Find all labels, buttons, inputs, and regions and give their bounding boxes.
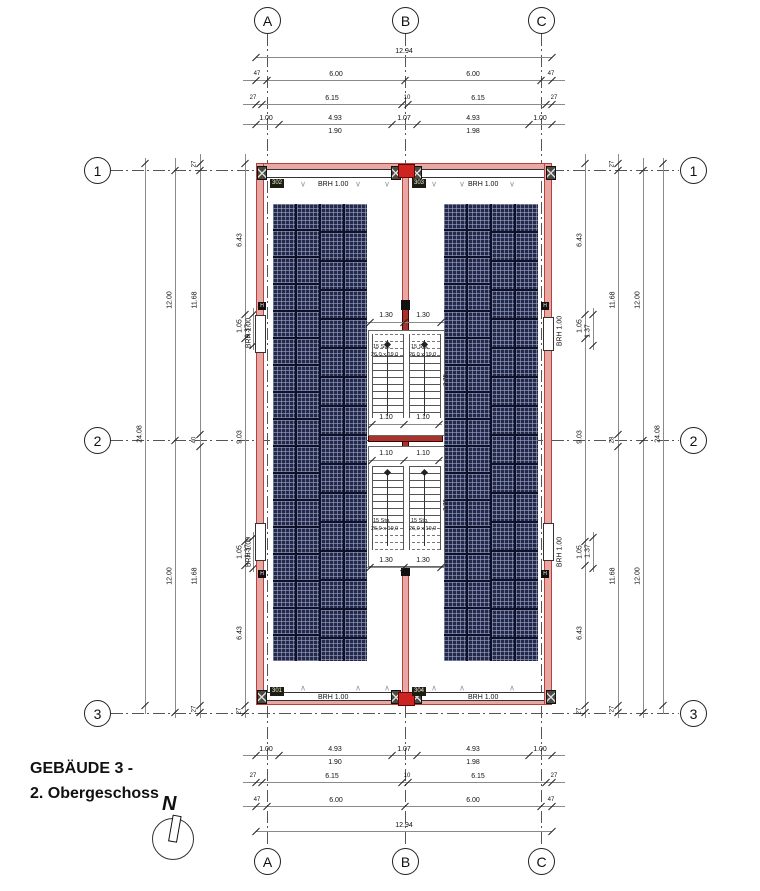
- room-tag: 301: [270, 687, 284, 696]
- stair-walk-line: [387, 340, 388, 416]
- solar-module: [444, 231, 466, 256]
- dim-line: [367, 322, 444, 323]
- window-opening-mark: ∨: [384, 180, 390, 189]
- dim-label: 4.93: [328, 115, 342, 122]
- dim-label: 6.43: [237, 233, 244, 247]
- dim-line: [243, 124, 565, 125]
- dim-label: 10: [404, 773, 411, 780]
- dim-label: 1.05: [577, 545, 584, 559]
- dim-label: 1.30: [379, 312, 393, 319]
- solar-module: [444, 393, 466, 418]
- dim-label: 27: [192, 161, 199, 168]
- solar-module: [516, 291, 538, 318]
- dim-label: 6.00: [329, 71, 343, 78]
- dim-line: [256, 831, 552, 832]
- solar-module: [297, 339, 319, 364]
- brh-label: BRH 1.00: [468, 181, 498, 188]
- solar-module: [297, 420, 319, 445]
- solar-module: [321, 262, 343, 289]
- solar-module: [444, 420, 466, 445]
- solar-module: [273, 474, 295, 499]
- solar-module: [345, 291, 367, 318]
- solar-module: [321, 320, 343, 347]
- shaft-block: [398, 164, 415, 178]
- dim-label: 27: [250, 95, 257, 102]
- dim-label: 9.03: [237, 430, 244, 444]
- solar-array: [444, 204, 538, 661]
- dim-label: 12.00: [167, 567, 174, 585]
- dim-label: 6.43: [237, 626, 244, 640]
- axis-circle-B: B: [392, 7, 419, 34]
- dim-sublabel: 1.98: [466, 759, 480, 766]
- dim-label: 1.30: [416, 557, 430, 564]
- solar-module: [444, 474, 466, 499]
- side-window: [543, 317, 554, 351]
- dim-label: 47: [254, 71, 261, 78]
- dim-label: 4.93: [466, 746, 480, 753]
- solar-module: [468, 420, 490, 445]
- hydrant-marker: H: [258, 570, 266, 578]
- window-opening-mark: ∨: [459, 180, 465, 189]
- solar-module: [273, 366, 295, 391]
- window-opening-mark: ∨: [431, 180, 437, 189]
- hydrant-marker: H: [258, 302, 266, 310]
- dim-label: 9.03: [577, 430, 584, 444]
- brh-label: BRH 1.00: [468, 694, 498, 701]
- dim-label: 28: [610, 437, 617, 444]
- solar-module: [273, 231, 295, 256]
- solar-module: [273, 339, 295, 364]
- solar-module: [297, 393, 319, 418]
- column-box: [546, 690, 556, 704]
- solar-module: [273, 312, 295, 337]
- solar-module: [516, 378, 538, 405]
- solar-module: [516, 523, 538, 550]
- column-box: [257, 166, 267, 180]
- solar-module: [297, 609, 319, 634]
- solar-module: [297, 447, 319, 472]
- solar-module: [345, 523, 367, 550]
- solar-module: [321, 349, 343, 376]
- solar-module: [516, 465, 538, 492]
- solar-module: [273, 420, 295, 445]
- solar-module: [492, 610, 514, 637]
- dim-label: 1.10: [416, 414, 430, 421]
- dim-sublabel: 1.90: [328, 128, 342, 135]
- solar-module: [345, 552, 367, 579]
- dim-label: 47: [548, 71, 555, 78]
- solar-module: [492, 291, 514, 318]
- dim-label: 11.68: [192, 568, 199, 585]
- solar-module: [297, 555, 319, 580]
- solar-module: [492, 465, 514, 492]
- solar-module: [468, 231, 490, 256]
- dim-label: 1.00: [259, 115, 273, 122]
- dim-label: 1.30: [416, 312, 430, 319]
- solar-module: [345, 436, 367, 463]
- dim-label: 27: [577, 708, 584, 715]
- window-opening-mark: ∧: [300, 684, 306, 693]
- solar-module: [273, 393, 295, 418]
- solar-module: [321, 204, 343, 231]
- wall: [256, 163, 264, 705]
- dim-line: [369, 424, 442, 425]
- axis-circle-C: C: [528, 848, 555, 875]
- side-window: [255, 315, 266, 353]
- axis-circle-1: 1: [84, 157, 111, 184]
- column-box: [257, 690, 267, 704]
- solar-module: [297, 312, 319, 337]
- solar-module: [468, 609, 490, 634]
- axis-circle-B: B: [392, 848, 419, 875]
- solar-module: [492, 378, 514, 405]
- dim-label: 6.00: [329, 797, 343, 804]
- dim-label: 27: [610, 161, 617, 168]
- dim-label: 6.15: [471, 773, 485, 780]
- solar-module: [444, 204, 466, 229]
- solar-module: [273, 555, 295, 580]
- solar-module: [444, 312, 466, 337]
- dim-label: 1.10: [379, 414, 393, 421]
- axis-circle-C: C: [528, 7, 555, 34]
- solar-module: [297, 636, 319, 661]
- solar-module: [297, 366, 319, 391]
- dim-label: 4.93: [466, 115, 480, 122]
- dim-label: 6.15: [471, 95, 485, 102]
- stair-treads: [373, 356, 403, 418]
- solar-module: [297, 204, 319, 229]
- solar-module: [321, 523, 343, 550]
- solar-module: [273, 447, 295, 472]
- stair-walk-line: [387, 470, 388, 546]
- dim-label: 24.08: [137, 425, 144, 443]
- dim-label: 1.05: [577, 319, 584, 333]
- dim-label: 6.43: [577, 233, 584, 247]
- solar-module: [345, 204, 367, 231]
- axis-circle-3: 3: [680, 700, 707, 727]
- solar-module: [492, 639, 514, 661]
- axis-circle-3: 3: [84, 700, 111, 727]
- solar-module: [516, 204, 538, 231]
- dim-label: 11.68: [610, 568, 617, 585]
- solar-module: [321, 552, 343, 579]
- window-opening-mark: ∨: [509, 180, 515, 189]
- solar-module: [273, 528, 295, 553]
- hydrant-marker: H: [541, 570, 549, 578]
- dim-line: [618, 154, 619, 718]
- dim-label: 1.00: [533, 746, 547, 753]
- solar-module: [468, 285, 490, 310]
- stair-text: 26,0 x 19,0: [409, 352, 436, 358]
- window-opening-mark: ∧: [431, 684, 437, 693]
- dim-label: 10: [404, 95, 411, 102]
- dim-label: 11.68: [192, 292, 199, 309]
- dim-label: 1.10: [416, 450, 430, 457]
- dim-line: [243, 755, 565, 756]
- dim-label: 12.00: [635, 567, 642, 585]
- solar-module: [468, 339, 490, 364]
- floor-plan-canvas: GEBÄUDE 3 - 2. Obergeschoss N 12.94476.0…: [0, 0, 760, 891]
- solar-module: [297, 231, 319, 256]
- dim-line: [145, 158, 146, 714]
- brh-label: BRH 1.00: [318, 694, 348, 701]
- solar-module: [444, 447, 466, 472]
- dim-sublabel: 1.98: [466, 128, 480, 135]
- drawing-title-line2: 2. Obergeschoss: [30, 785, 159, 803]
- brh-label: BRH 1.00: [557, 316, 564, 346]
- dim-label: 27: [192, 706, 199, 713]
- hydrant-marker: H: [541, 302, 549, 310]
- solar-array: [273, 204, 367, 661]
- solar-module: [273, 582, 295, 607]
- dim-label: 4.93: [328, 746, 342, 753]
- solar-module: [444, 285, 466, 310]
- solar-module: [468, 312, 490, 337]
- solar-module: [516, 581, 538, 608]
- dim-line: [256, 57, 552, 58]
- stair-walk-line: [424, 470, 425, 546]
- solar-module: [297, 258, 319, 283]
- solar-module: [516, 407, 538, 434]
- axis-circle-1: 1: [680, 157, 707, 184]
- brh-label: BRH 1.00: [246, 537, 253, 567]
- dim-label: 6.15: [325, 95, 339, 102]
- dim-sublabel: 1.90: [328, 759, 342, 766]
- dim-label: 1.00: [259, 746, 273, 753]
- solar-module: [345, 378, 367, 405]
- solar-module: [345, 610, 367, 637]
- solar-module: [492, 233, 514, 260]
- dim-label: 27: [610, 706, 617, 713]
- solar-module: [444, 528, 466, 553]
- stair-text: 26,0 x 19,0: [371, 352, 398, 358]
- solar-module: [321, 581, 343, 608]
- solar-module: [345, 407, 367, 434]
- solar-module: [345, 349, 367, 376]
- north-label: N: [162, 793, 176, 816]
- solar-module: [468, 555, 490, 580]
- side-window: [543, 523, 554, 561]
- solar-module: [492, 494, 514, 521]
- dim-label: 27: [551, 95, 558, 102]
- solar-module: [345, 233, 367, 260]
- dim-label: 6.15: [325, 773, 339, 780]
- dim-line: [585, 154, 586, 718]
- solar-module: [297, 285, 319, 310]
- dim-label: 12.00: [635, 291, 642, 309]
- dim-label: 12.00: [167, 291, 174, 309]
- dim-label: 1.37: [585, 544, 592, 558]
- solar-module: [345, 639, 367, 661]
- dim-label: 1.37: [585, 324, 592, 338]
- side-window: [255, 523, 266, 561]
- stair-text: 15 Stg.: [411, 518, 428, 524]
- solar-module: [345, 494, 367, 521]
- wall: [544, 163, 552, 705]
- solar-module: [444, 582, 466, 607]
- solar-module: [516, 262, 538, 289]
- room-tag: 303: [412, 179, 426, 188]
- stair-text: 26,0 x 19,0: [371, 526, 398, 532]
- window-opening-mark: ∧: [459, 684, 465, 693]
- solar-module: [492, 552, 514, 579]
- window-opening-mark: ∧: [355, 684, 361, 693]
- dim-line: [663, 158, 664, 714]
- dim-label: 1.00: [533, 115, 547, 122]
- solar-module: [321, 436, 343, 463]
- solar-module: [321, 639, 343, 661]
- dim-label: 1.30: [379, 557, 393, 564]
- solar-module: [321, 494, 343, 521]
- dim-label: 27: [250, 773, 257, 780]
- solar-module: [492, 581, 514, 608]
- dim-label: 47: [548, 797, 555, 804]
- dim-label: 6.00: [466, 71, 480, 78]
- solar-module: [492, 262, 514, 289]
- solar-module: [468, 474, 490, 499]
- drawing-title-line1: GEBÄUDE 3 -: [30, 760, 133, 778]
- stair-treads: [410, 356, 440, 418]
- stair-flight: [409, 466, 441, 550]
- stair-walk-line: [424, 340, 425, 416]
- solar-module: [321, 233, 343, 260]
- solar-module: [273, 636, 295, 661]
- solar-module: [273, 285, 295, 310]
- window-band: [416, 169, 544, 178]
- dim-line: [245, 154, 246, 718]
- brh-label: BRH 1.00: [246, 318, 253, 348]
- solar-module: [492, 320, 514, 347]
- solar-module: [468, 447, 490, 472]
- solar-module: [273, 204, 295, 229]
- dim-label: 12.94: [395, 822, 413, 829]
- solar-module: [516, 552, 538, 579]
- core-block: [401, 300, 410, 310]
- solar-module: [468, 258, 490, 283]
- stair-text: 26,0 x 19,0: [409, 526, 436, 532]
- solar-module: [321, 610, 343, 637]
- solar-module: [273, 501, 295, 526]
- solar-module: [516, 436, 538, 463]
- solar-module: [468, 204, 490, 229]
- dim-label: 24.08: [655, 425, 662, 443]
- dim-label: 27: [551, 773, 558, 780]
- solar-module: [468, 366, 490, 391]
- brh-label: BRH 1.00: [318, 181, 348, 188]
- solar-module: [444, 339, 466, 364]
- dim-line: [369, 460, 442, 461]
- axis-circle-A: A: [254, 7, 281, 34]
- solar-module: [273, 609, 295, 634]
- window-opening-mark: ∧: [384, 684, 390, 693]
- window-opening-mark: ∨: [355, 180, 361, 189]
- dim-label: 1.05: [237, 545, 244, 559]
- solar-module: [492, 349, 514, 376]
- solar-module: [516, 320, 538, 347]
- window-opening-mark: ∨: [300, 180, 306, 189]
- solar-module: [273, 258, 295, 283]
- solar-module: [468, 528, 490, 553]
- dim-label: 1.07: [397, 115, 411, 122]
- dim-line: [367, 567, 444, 568]
- solar-module: [444, 636, 466, 661]
- dim-line: [243, 782, 565, 783]
- solar-module: [297, 528, 319, 553]
- solar-module: [321, 407, 343, 434]
- dim-label: 47: [254, 797, 261, 804]
- dim-line: [243, 104, 565, 105]
- solar-module: [516, 349, 538, 376]
- dim-label: 1.07: [397, 746, 411, 753]
- axis-circle-A: A: [254, 848, 281, 875]
- solar-module: [468, 393, 490, 418]
- solar-module: [345, 465, 367, 492]
- solar-module: [444, 258, 466, 283]
- solar-module: [468, 636, 490, 661]
- dim-line: [200, 154, 201, 718]
- axis-circle-2: 2: [84, 427, 111, 454]
- room-tag: 302: [270, 179, 284, 188]
- solar-module: [297, 501, 319, 526]
- solar-module: [444, 555, 466, 580]
- solar-module: [444, 609, 466, 634]
- solar-module: [321, 465, 343, 492]
- solar-module: [516, 610, 538, 637]
- solar-module: [492, 523, 514, 550]
- window-opening-mark: ∧: [509, 684, 515, 693]
- solar-module: [321, 291, 343, 318]
- window-band: [264, 169, 392, 178]
- brh-label: BRH 1.00: [557, 537, 564, 567]
- solar-module: [492, 436, 514, 463]
- solar-module: [297, 582, 319, 607]
- solar-module: [345, 320, 367, 347]
- dim-label: 2.75: [444, 374, 451, 386]
- stair-flight: [372, 466, 404, 550]
- solar-module: [297, 474, 319, 499]
- dim-label: 12.94: [395, 48, 413, 55]
- dim-label: 6.43: [577, 626, 584, 640]
- axis-circle-2: 2: [680, 427, 707, 454]
- dim-label: 11.68: [610, 292, 617, 309]
- solar-module: [345, 581, 367, 608]
- dim-label: 6.00: [466, 797, 480, 804]
- solar-module: [468, 501, 490, 526]
- solar-module: [516, 233, 538, 260]
- dim-label: 27: [237, 708, 244, 715]
- room-tag: 304: [412, 687, 426, 696]
- dim-label: 1.10: [379, 450, 393, 457]
- solar-module: [516, 494, 538, 521]
- solar-module: [492, 204, 514, 231]
- dim-label: 1.05: [237, 319, 244, 333]
- column-box: [546, 166, 556, 180]
- dim-label: 40: [192, 437, 199, 444]
- dim-label: 2.75: [444, 499, 451, 511]
- solar-module: [345, 262, 367, 289]
- solar-module: [321, 378, 343, 405]
- solar-module: [516, 639, 538, 661]
- solar-module: [492, 407, 514, 434]
- solar-module: [468, 582, 490, 607]
